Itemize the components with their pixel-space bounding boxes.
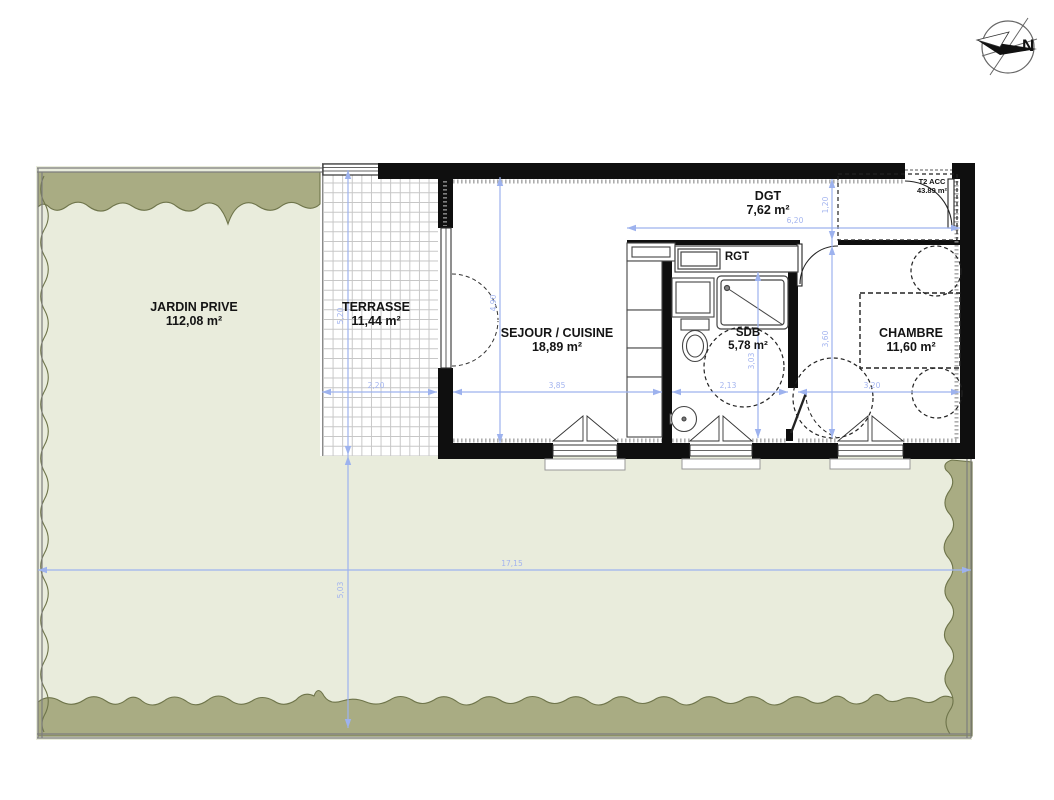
- shower: [717, 276, 788, 329]
- dim-dgt-width: 6,20: [775, 217, 815, 225]
- dim-terrasse-width: 2,20: [356, 382, 396, 390]
- window-sejour: [545, 416, 625, 470]
- sdb-door: [791, 393, 836, 437]
- plan-drawing: [0, 0, 1054, 800]
- label-t2-acc: T2 ACC43.89 m²: [892, 177, 972, 195]
- dimension-lines: [38, 170, 971, 728]
- dim-sdb-width: 2,13: [708, 382, 748, 390]
- washbasin: [670, 407, 697, 432]
- label-jardin: JARDIN PRIVE112,08 m²: [114, 300, 274, 328]
- label-chambre: CHAMBRE11,60 m²: [831, 326, 991, 354]
- chambre-door: [797, 244, 838, 286]
- door-jamb-block: [786, 429, 793, 441]
- dim-garden-width: 17,15: [492, 560, 532, 568]
- floor-plan: JARDIN PRIVE112,08 m² TERRASSE11,44 m² S…: [0, 0, 1054, 800]
- dim-sdb-height: 3,03: [748, 341, 756, 381]
- dim-garden-height: 5,03: [337, 570, 345, 610]
- bathroom-fixtures: [670, 276, 788, 432]
- turning-circle-corridor: [793, 358, 873, 438]
- label-rgt: RGT: [697, 251, 777, 264]
- hedge-left: [41, 176, 49, 732]
- dim-chambre-width: 3,20: [852, 382, 892, 390]
- sdb-chambre-wall: [788, 246, 798, 388]
- garden-area: [36, 166, 972, 740]
- label-terrasse: TERRASSE11,44 m²: [296, 300, 456, 328]
- north-label: N: [1022, 36, 1034, 56]
- window-sdb: [682, 416, 760, 469]
- dim-sejour-width: 3,85: [537, 382, 577, 390]
- window-chambre: [830, 416, 910, 469]
- dgt-partition-left: [627, 240, 800, 245]
- hedge-right: [944, 460, 972, 734]
- turning-circle-chambre-bottom: [912, 368, 962, 418]
- hedge-top: [38, 172, 320, 224]
- turning-circle-chambre-top: [911, 246, 961, 296]
- insulation-hatch: [445, 181, 957, 441]
- vanity: [672, 278, 714, 317]
- walls: [378, 163, 975, 459]
- garden-fence: [37, 168, 971, 738]
- dimension-arrows: [38, 170, 971, 728]
- dgt-partition-right: [838, 240, 960, 245]
- hedge-bottom: [38, 691, 972, 737]
- dim-sejour-height: 4,90: [490, 283, 498, 323]
- dim-terrasse-height: 5,20: [337, 296, 345, 336]
- dim-chambre-height: 3,60: [822, 319, 830, 359]
- dim-dgt-height: 1,20: [822, 185, 830, 225]
- label-sejour: SEJOUR / CUISINE18,89 m²: [477, 326, 637, 354]
